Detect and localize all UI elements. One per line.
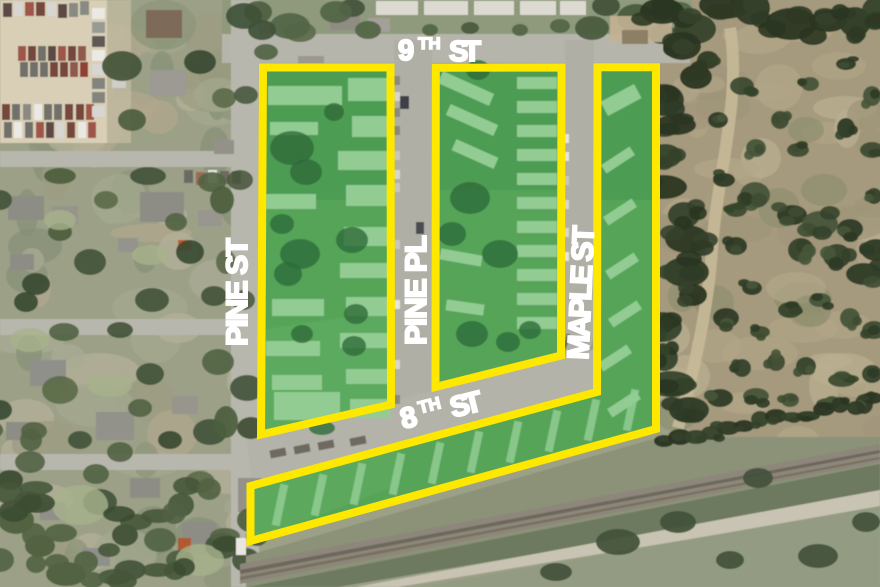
svg-text:ST: ST: [449, 36, 481, 68]
svg-text:PINE PL: PINE PL: [400, 235, 433, 345]
svg-text:PINE ST: PINE ST: [221, 238, 254, 346]
svg-text:9: 9: [398, 35, 414, 67]
svg-text:MAPLE ST: MAPLE ST: [562, 225, 601, 360]
svg-text:TH: TH: [418, 34, 441, 53]
